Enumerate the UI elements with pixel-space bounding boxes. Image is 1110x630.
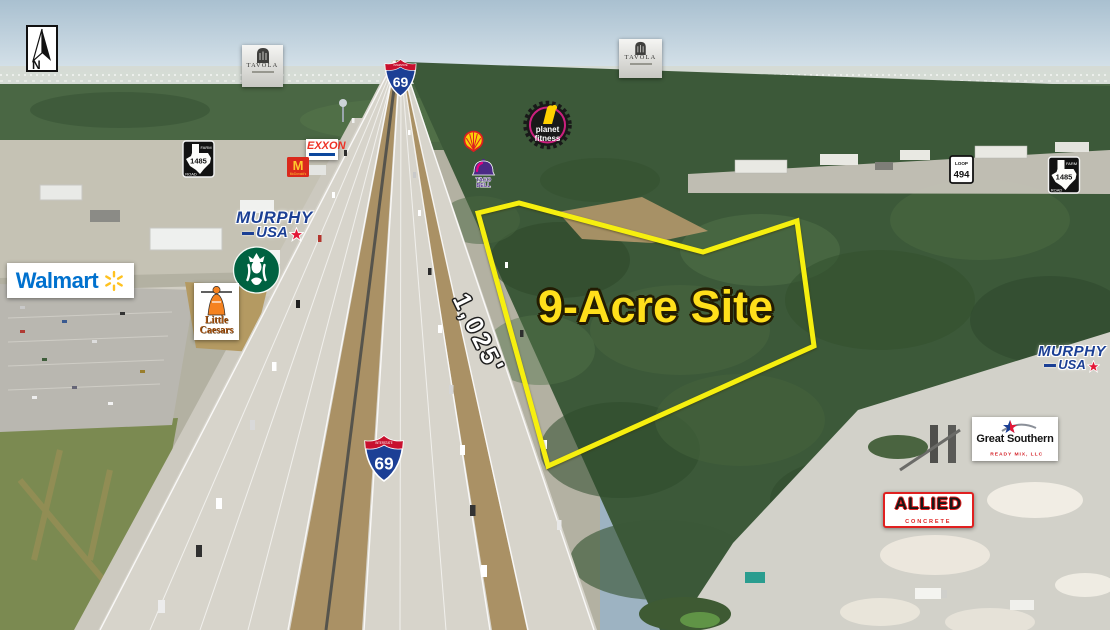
farm-label: FARM <box>1066 161 1077 166</box>
road-label: ROAD <box>1051 188 1063 193</box>
road-label: ROAD <box>185 172 197 177</box>
route-number: 494 <box>954 170 971 181</box>
walmart-sign: Walmart <box>7 263 134 298</box>
star-swoosh-icon <box>974 418 1056 433</box>
exxon-sign: EXXON <box>306 139 338 160</box>
tavola-tower-icon <box>634 41 647 55</box>
great-southern-sign: Great Southern READY MIX, LLC <box>972 417 1058 461</box>
interstate-band-label: INTERSTATE <box>375 441 393 445</box>
tavola-name: TAVOLA <box>625 54 657 61</box>
tavola-tagline-bar <box>630 63 652 65</box>
bell-label: BELL <box>476 183 491 188</box>
loop-label: LOOP <box>955 161 968 166</box>
taco-bell-sign: TACO BELL <box>470 155 497 188</box>
planet-label: planet <box>536 125 560 134</box>
tavola-sign-east: TAVOLA <box>619 39 662 78</box>
little-caesars-wordmark-line2: Caesars <box>200 326 234 336</box>
taco-bell-icon: TACO BELL <box>470 155 497 188</box>
interstate-69-shield-north: INTERSTATE 69 <box>384 58 417 98</box>
murphy-dash <box>242 232 254 235</box>
starbucks-siren-icon <box>232 244 281 296</box>
tavola-tower-icon <box>256 47 270 63</box>
tavola-name: TAVOLA <box>247 62 279 69</box>
interstate-shield-icon: INTERSTATE 69 <box>363 435 405 482</box>
interstate-number: 69 <box>393 74 409 90</box>
tavola-tagline-bar <box>252 71 274 73</box>
usa-wordmark: USA <box>1058 359 1085 371</box>
fm-1485-shield-east: FARM 1485 ROAD <box>1046 156 1082 194</box>
planet-fitness-sign: planet fitness <box>522 99 573 151</box>
interstate-69-shield-south: INTERSTATE 69 <box>363 435 405 482</box>
walmart-wordmark: Walmart <box>16 268 98 294</box>
texas-outline-icon: FARM 1485 ROAD <box>182 140 215 178</box>
great-southern-wordmark: Great Southern <box>974 433 1056 445</box>
planet-fitness-gear-icon: planet fitness <box>522 99 573 151</box>
fitness-label: fitness <box>535 134 561 143</box>
north-arrow: N <box>26 25 58 72</box>
route-number: 1485 <box>1056 173 1073 182</box>
allied-wordmark: ALLIED <box>885 495 972 513</box>
exxon-wordmark: EXXON <box>307 141 337 152</box>
aerial-site-map: 9-Acre Site 1,025' N TAVOLA TAVOLA <box>0 0 1110 630</box>
shell-pecten-icon <box>462 129 485 153</box>
farm-label: FARM <box>200 145 211 150</box>
interstate-shield-icon: INTERSTATE 69 <box>384 58 417 98</box>
little-caesars-sign: Little Caesars <box>194 283 239 340</box>
exxon-blue-bar <box>309 153 335 156</box>
loop-494-shield: LOOP 494 <box>949 155 974 184</box>
great-southern-tagline: READY MIX, LLC <box>990 451 1043 457</box>
interstate-number: 69 <box>374 454 394 474</box>
murphy-usa-sign-east: MURPHY USA <box>1036 344 1108 371</box>
little-caesar-figure-icon <box>196 284 237 316</box>
mcdonalds-sign: M McDonald's <box>287 157 309 177</box>
fm-1485-shield-west: FARM 1485 ROAD <box>182 140 215 178</box>
tavola-sign-west: TAVOLA <box>242 45 283 87</box>
mcdonalds-name: McDonald's <box>290 172 307 176</box>
usa-wordmark: USA <box>256 226 288 240</box>
walmart-spark-icon <box>103 270 125 292</box>
red-star-icon <box>289 227 304 242</box>
golden-arches-icon: M McDonald's <box>287 157 309 177</box>
red-star-icon <box>1087 360 1100 373</box>
starbucks-sign <box>232 244 281 296</box>
texas-outline-icon: FARM 1485 ROAD <box>1046 156 1082 194</box>
interstate-band-label: INTERSTATE <box>393 63 407 67</box>
north-label: N <box>32 58 41 72</box>
allied-concrete-sign: ALLIED CONCRETE <box>883 492 974 528</box>
route-number: 1485 <box>190 157 207 166</box>
murphy-usa-sign-west: MURPHY USA <box>236 209 310 240</box>
site-acreage-label: 9-Acre Site <box>538 281 773 333</box>
shell-sign <box>462 129 485 153</box>
arches-m: M <box>293 158 304 173</box>
loop-shield-icon: LOOP 494 <box>949 155 974 184</box>
murphy-dash <box>1044 364 1056 367</box>
allied-tagline: CONCRETE <box>905 518 951 524</box>
north-arrow-icon: N <box>26 25 58 72</box>
